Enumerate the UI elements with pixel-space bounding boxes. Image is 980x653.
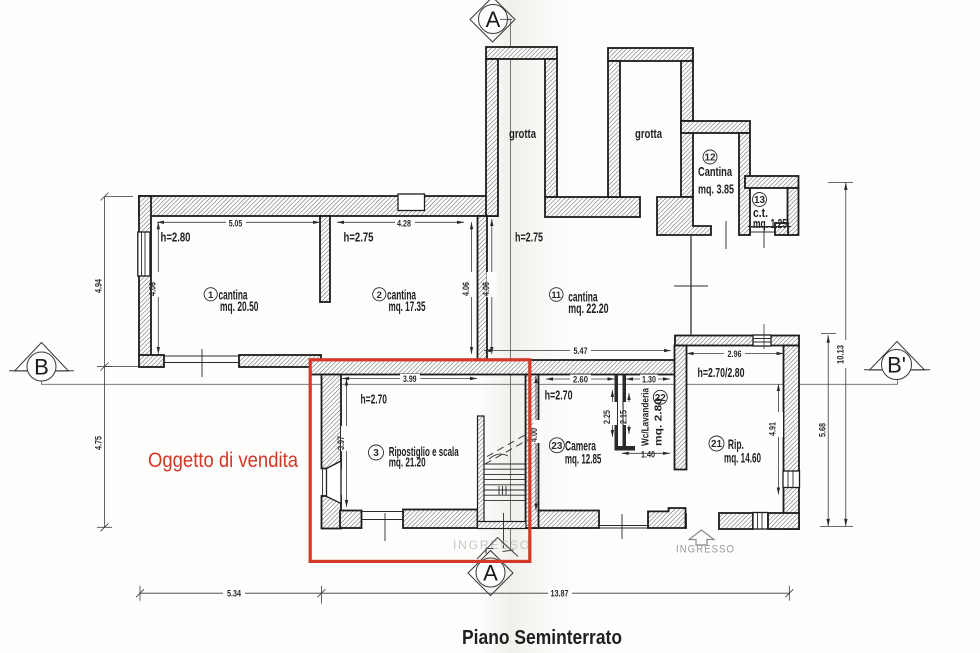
svg-text:10.13: 10.13 (836, 345, 846, 364)
svg-text:h=2.70: h=2.70 (545, 388, 573, 403)
svg-text:Wc/Lavanderia: Wc/Lavanderia (640, 388, 652, 446)
svg-text:1.40: 1.40 (641, 450, 655, 460)
svg-text:1: 1 (208, 290, 214, 301)
svg-text:13: 13 (754, 195, 766, 206)
svg-text:mq. 3.85: mq. 3.85 (698, 183, 734, 197)
svg-text:5.05: 5.05 (229, 218, 243, 228)
svg-text:grotta: grotta (509, 127, 537, 141)
svg-text:5.47: 5.47 (574, 346, 588, 356)
svg-text:Oggetto di vendita: Oggetto di vendita (148, 448, 298, 472)
svg-text:B': B' (887, 353, 906, 378)
svg-text:mq. 2.80: mq. 2.80 (653, 398, 665, 446)
svg-text:mq. 20.50: mq. 20.50 (220, 298, 259, 314)
svg-text:4.94: 4.94 (94, 279, 104, 293)
svg-text:21: 21 (711, 439, 723, 450)
svg-text:h=2.80: h=2.80 (161, 230, 191, 245)
svg-text:2.60: 2.60 (573, 375, 588, 385)
svg-text:2.15: 2.15 (619, 410, 629, 424)
svg-text:5.34: 5.34 (227, 589, 241, 599)
svg-text:h=2.75: h=2.75 (515, 230, 543, 245)
svg-text:A: A (483, 561, 498, 586)
svg-text:22: 22 (655, 393, 667, 404)
svg-text:INGRESSO: INGRESSO (676, 544, 735, 556)
svg-text:mq. 1.25: mq. 1.25 (753, 217, 787, 231)
svg-text:11: 11 (552, 290, 562, 300)
svg-text:13.87: 13.87 (551, 589, 569, 599)
svg-text:4.06: 4.06 (481, 282, 491, 296)
svg-text:mq. 22.20: mq. 22.20 (568, 300, 609, 316)
svg-text:h=2.75: h=2.75 (344, 230, 374, 245)
svg-text:h=2.70: h=2.70 (361, 392, 388, 407)
svg-text:INGRESSO: INGRESSO (453, 538, 531, 552)
svg-text:1.30: 1.30 (642, 375, 656, 385)
svg-text:A: A (486, 7, 501, 32)
svg-text:Cantina: Cantina (698, 165, 733, 179)
svg-text:5.68: 5.68 (818, 423, 828, 437)
svg-text:4.06: 4.06 (461, 282, 471, 296)
svg-text:mq. 21.20: mq. 21.20 (389, 455, 426, 469)
svg-text:2.96: 2.96 (728, 349, 742, 359)
svg-text:4.28: 4.28 (397, 218, 411, 228)
svg-text:3.97: 3.97 (336, 436, 346, 450)
svg-text:2: 2 (377, 290, 382, 301)
svg-text:mq. 17.35: mq. 17.35 (389, 298, 426, 314)
svg-text:3.99: 3.99 (403, 374, 417, 384)
svg-text:4.06: 4.06 (148, 282, 158, 296)
svg-text:3: 3 (373, 448, 379, 459)
svg-text:2.25: 2.25 (602, 410, 612, 424)
svg-text:B: B (34, 355, 49, 380)
svg-text:h=2.70/2.80: h=2.70/2.80 (698, 365, 745, 380)
svg-text:grotta: grotta (635, 127, 663, 141)
svg-text:4.91: 4.91 (768, 422, 778, 436)
svg-text:4.75: 4.75 (94, 436, 104, 450)
svg-text:mq. 14.60: mq. 14.60 (724, 450, 761, 466)
svg-text:12: 12 (704, 153, 716, 164)
svg-text:Piano Seminterrato: Piano Seminterrato (462, 626, 622, 649)
svg-text:mq. 12.85: mq. 12.85 (565, 451, 602, 467)
svg-text:23: 23 (551, 441, 563, 452)
